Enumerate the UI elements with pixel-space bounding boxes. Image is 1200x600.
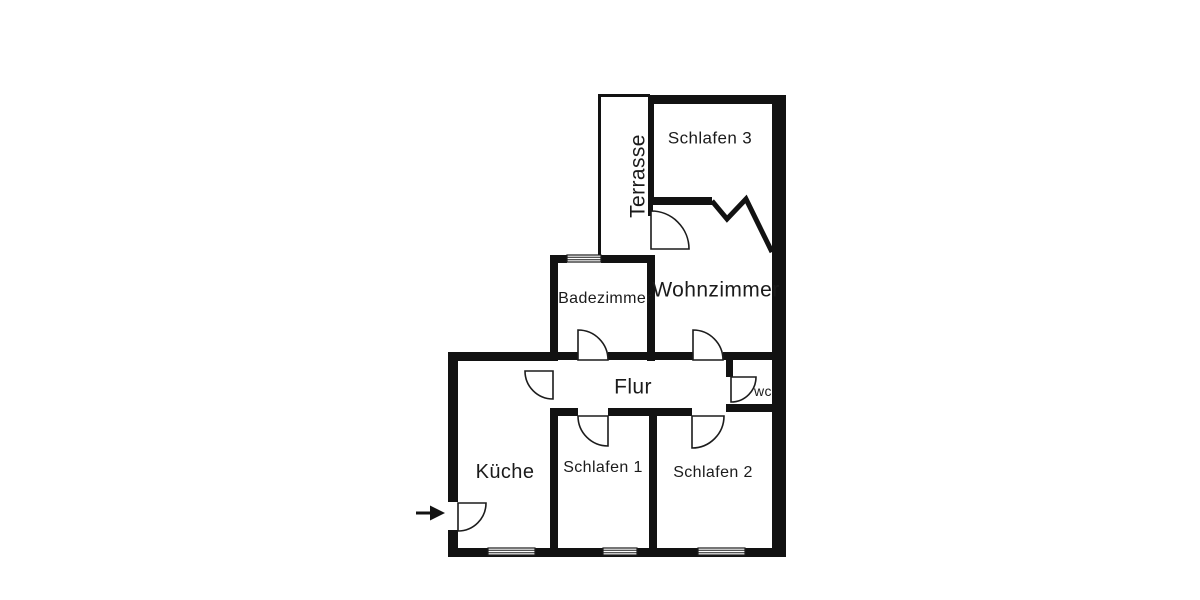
- room-label-flur: Flur: [614, 377, 652, 398]
- door-schlafen2: [692, 416, 724, 448]
- room-label-schlafen-1: Schlafen 1: [563, 460, 643, 476]
- door-entrance: [458, 503, 486, 531]
- wall-wc-bottom: [726, 404, 772, 412]
- wall-flur-top-a: [558, 352, 578, 360]
- door-wohnzimmer: [693, 330, 723, 360]
- window-badezimmer: [567, 255, 601, 262]
- door-terrasse: [651, 211, 689, 249]
- wall-flur-top-b: [608, 352, 693, 360]
- window-schlafen2: [698, 548, 745, 555]
- wall-kueche-schlafen1-divider: [550, 408, 558, 548]
- room-label-kueche: Küche: [476, 462, 535, 482]
- wall-badezimmer-top-left: [550, 255, 567, 263]
- room-label-wohnzimmer: Wohnzimmer: [652, 280, 779, 301]
- wall-left-lower: [448, 530, 458, 557]
- wall-right: [772, 95, 786, 557]
- window-kueche: [488, 548, 535, 555]
- room-label-terrasse: Terrasse: [628, 134, 649, 218]
- door-badezimmer: [578, 330, 608, 360]
- room-label-wc: wc: [754, 384, 772, 398]
- room-label-schlafen-3: Schlafen 3: [668, 130, 752, 147]
- wall-schlafen3-bottom: [648, 197, 712, 205]
- wall-wc-left-stub: [726, 360, 733, 377]
- door-wc: [731, 377, 756, 402]
- floorplan-canvas: Schlafen 3 Terrasse Badezimmer Wohnzimme…: [0, 0, 1200, 600]
- wall-badezimmer-top-right: [601, 255, 655, 263]
- room-label-schlafen-2: Schlafen 2: [673, 465, 753, 481]
- window-schlafen1: [603, 548, 637, 555]
- wall-kueche-top: [448, 352, 558, 361]
- wall-top: [648, 95, 786, 104]
- wall-badezimmer-left: [550, 255, 558, 361]
- entrance-arrow-icon: [416, 506, 445, 521]
- wall-schlafen1-schlafen2-divider: [649, 408, 657, 548]
- folding-door-zigzag: [712, 199, 772, 252]
- wall-wc-top: [723, 352, 772, 360]
- door-kueche: [525, 371, 553, 399]
- wall-badezimmer-right: [647, 255, 655, 361]
- door-schlafen1: [578, 416, 608, 446]
- wall-left-upper: [448, 352, 458, 502]
- room-label-badezimmer: Badezimmer: [558, 291, 652, 307]
